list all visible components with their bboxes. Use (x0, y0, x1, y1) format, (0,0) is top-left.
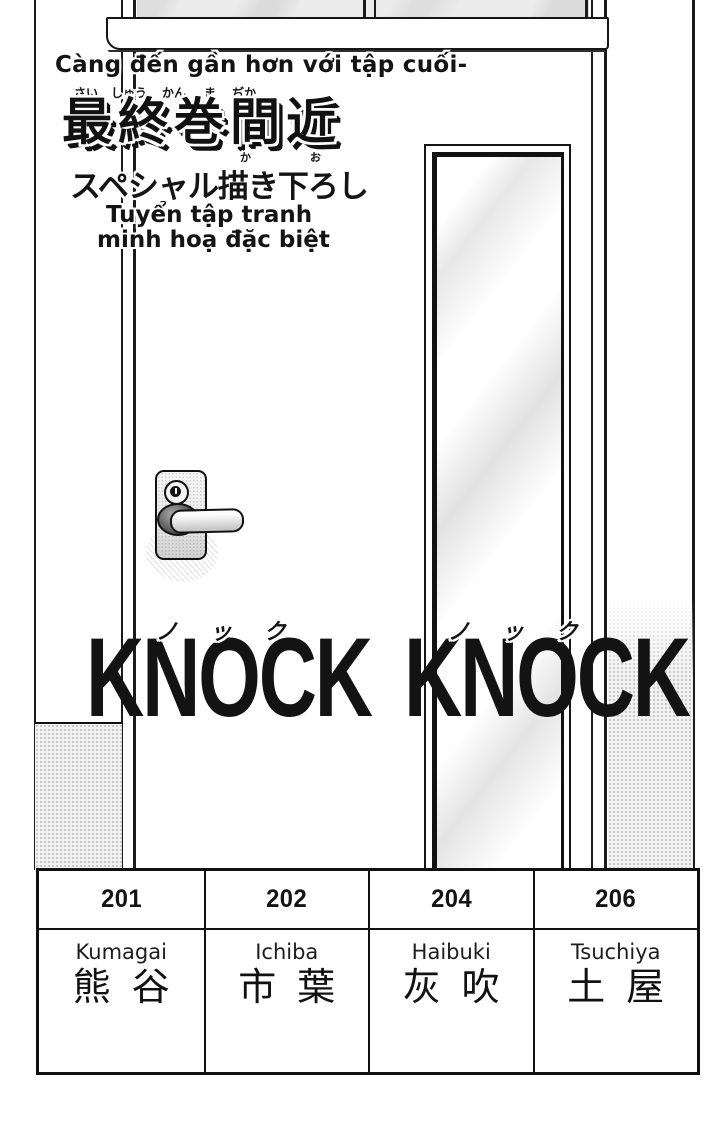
name-kanji: 灰吹 (403, 964, 521, 1012)
room-number-cell: 204 (368, 871, 533, 928)
door-lintel-bar (106, 17, 609, 50)
name-romaji: Tsuchiya (571, 941, 661, 964)
name-cell: Haibuki 灰吹 (368, 928, 533, 1072)
subtitle-vietnamese-line1: Tuyển tập tranh (106, 202, 312, 228)
room-number-cell: 206 (533, 871, 698, 928)
tagline-vietnamese: Càng đến gần hơn với tập cuối- (55, 52, 468, 78)
room-number-cell: 201 (39, 871, 204, 928)
sfx-kana-group-1: ノ ッ ク (154, 614, 292, 646)
title-japanese: 最終巻間近 (62, 95, 342, 150)
door-window-panel (424, 144, 571, 874)
name-kanji: 熊谷 (73, 964, 191, 1012)
door-handle-lever (170, 508, 245, 534)
name-romaji: Haibuki (412, 941, 491, 964)
keyhole-slit (175, 488, 177, 494)
room-number: 206 (595, 885, 636, 914)
room-number: 204 (431, 885, 472, 914)
name-kanji: 土屋 (567, 964, 685, 1012)
room-number-cell: 202 (204, 871, 369, 928)
subtitle-vietnamese-line2: minh hoạ đặc biệt (97, 227, 330, 253)
nameplate-table: 201 202 204 206 Kumagai 熊谷 Ichiba 市葉 Hai… (36, 868, 700, 1075)
name-cell: Ichiba 市葉 (204, 928, 369, 1072)
sfx-kana-group-2: ノ ッ ク (446, 614, 584, 646)
manga-page: Càng đến gần hơn với tập cuối- さいしゅうかんまぢ… (0, 0, 728, 1143)
name-romaji: Ichiba (255, 941, 318, 964)
subtitle-japanese: スペシャル描き下ろし (70, 161, 368, 206)
window-glass (432, 152, 564, 872)
name-cell: Tsuchiya 土屋 (533, 928, 698, 1072)
kana-char: ッ (208, 614, 238, 646)
kana-char: ッ (500, 614, 530, 646)
name-romaji: Kumagai (76, 941, 167, 964)
name-cell: Kumagai 熊谷 (39, 928, 204, 1072)
room-number: 202 (266, 885, 307, 914)
name-kanji: 市葉 (238, 964, 356, 1012)
wall-shade-left (35, 722, 122, 872)
room-number: 201 (101, 885, 142, 914)
